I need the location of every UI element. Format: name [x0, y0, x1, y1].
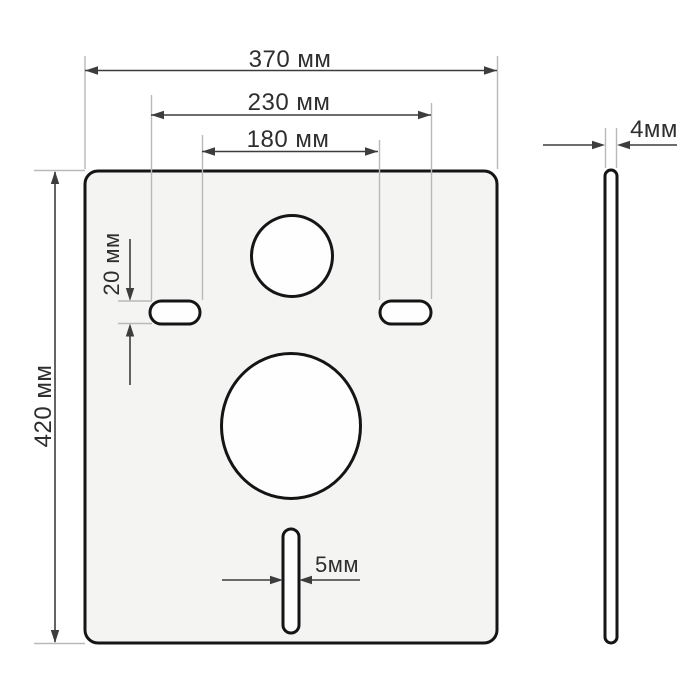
dimension-slots-inner-span: 180 мм — [202, 126, 378, 156]
dim-label-thickness: 4мм — [630, 116, 678, 143]
arrow-right-icon — [484, 66, 497, 74]
dim-label-mount-slot-height: 20 мм — [99, 232, 124, 295]
dimension-slots-outer-span: 230 мм — [151, 89, 431, 119]
dim-label-bottom-slot-width: 5мм — [315, 552, 359, 577]
arrow-down-icon — [51, 630, 59, 643]
arrow-left-icon — [151, 111, 164, 119]
dim-label-slots-inner-span: 180 мм — [247, 126, 330, 153]
dimension-overall-width: 370 мм — [85, 46, 497, 75]
arrow-right-icon — [418, 111, 431, 119]
dimension-overall-height: 420 мм — [30, 171, 59, 643]
arrow-right-icon — [592, 141, 605, 149]
dim-label-overall-height: 420 мм — [30, 365, 57, 448]
thickness-profile — [605, 170, 617, 643]
dimension-thickness: 4мм — [543, 116, 678, 149]
dim-label-slots-outer-span: 230 мм — [248, 89, 331, 116]
technical-drawing-page: 370 мм 230 мм 180 мм 420 мм — [0, 0, 700, 700]
arrow-right-icon — [365, 147, 378, 155]
arrow-up-icon — [51, 171, 59, 184]
dim-label-overall-width: 370 мм — [249, 46, 332, 73]
arrow-left-icon — [617, 141, 630, 149]
bottom-vertical-slot — [283, 529, 299, 633]
side-view — [605, 170, 617, 643]
left-mount-slot — [150, 301, 200, 324]
upper-flush-hole — [252, 216, 333, 297]
arrow-left-icon — [85, 66, 98, 74]
arrow-left-icon — [202, 147, 215, 155]
right-mount-slot — [380, 301, 431, 324]
large-drain-hole — [222, 354, 361, 499]
gasket-dimension-drawing: 370 мм 230 мм 180 мм 420 мм — [0, 0, 700, 700]
